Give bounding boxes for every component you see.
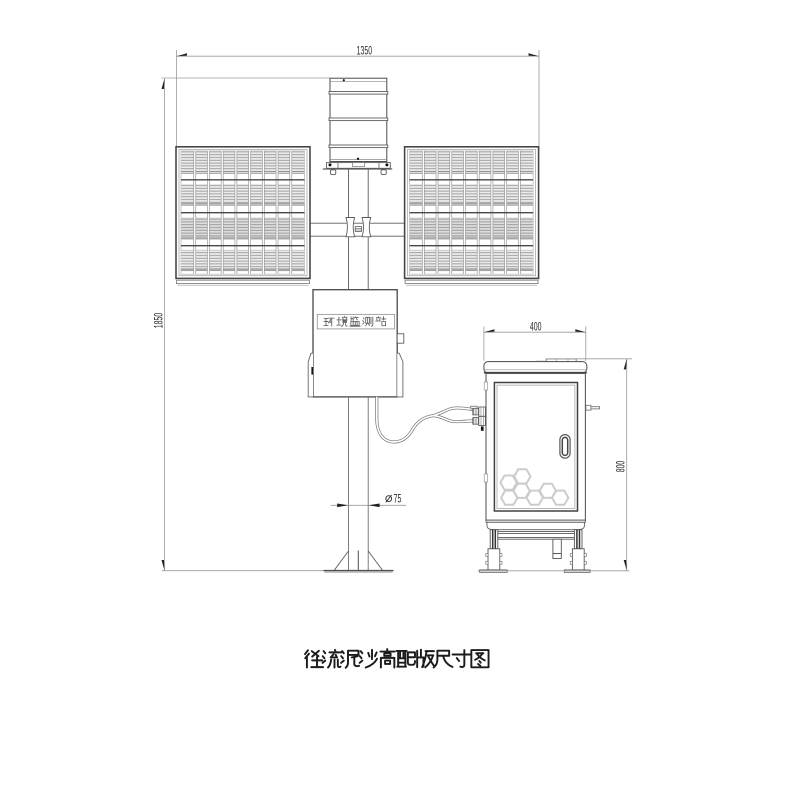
svg-text:800: 800 (615, 460, 628, 472)
svg-text:75: 75 (394, 493, 402, 506)
svg-text:400: 400 (530, 321, 542, 334)
svg-text:1850: 1850 (153, 312, 166, 328)
svg-text:1350: 1350 (357, 45, 373, 58)
